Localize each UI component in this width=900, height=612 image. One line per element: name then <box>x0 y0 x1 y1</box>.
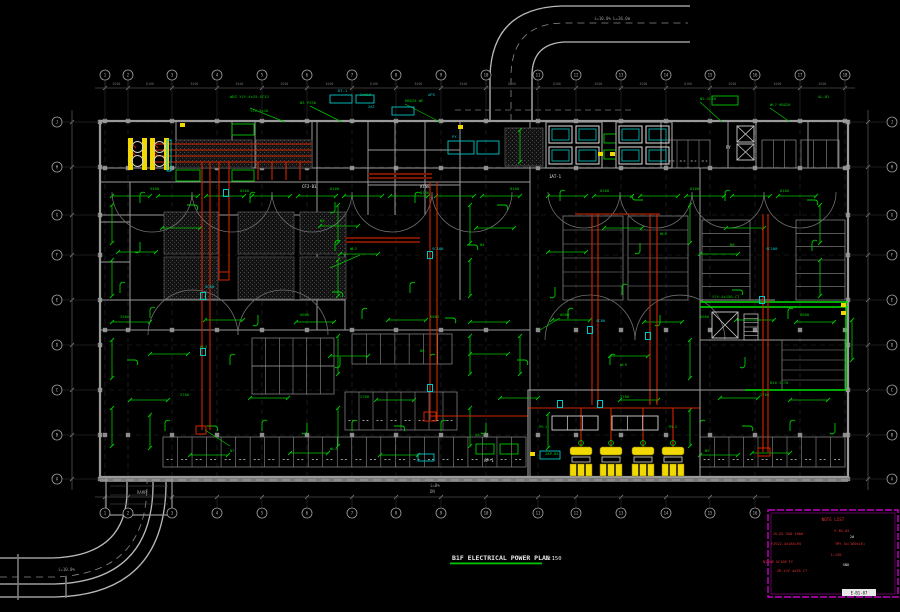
tray-connector <box>201 349 206 356</box>
circuit-hook-path <box>362 308 367 319</box>
elevator-car-cab <box>622 150 639 161</box>
circuit-hook <box>430 354 435 365</box>
green-annotation-text: 6000 <box>300 312 310 317</box>
green-equipment-box <box>232 124 254 135</box>
green-annotation-text: 8100 <box>420 190 430 195</box>
dim-value: 8100 <box>595 82 603 86</box>
green-annotation-text: N10 SC70 <box>770 380 789 385</box>
elevator-car <box>549 147 572 164</box>
circuit-hook-path <box>467 245 478 250</box>
cyan-annotation-text: PY-1 <box>452 134 462 139</box>
circuit-hook-path <box>830 423 835 434</box>
grid-bubble-label: J <box>56 120 58 125</box>
circuit-hook <box>140 192 145 203</box>
circuit-hook <box>807 200 818 205</box>
dim-value: 8100 <box>819 82 827 86</box>
green-annotation-text: N3 PZ30 <box>300 100 317 105</box>
green-annotation-text: 6000 <box>430 314 440 319</box>
dim-value: 8100 <box>640 82 648 86</box>
dim-value: 8100 <box>326 82 334 86</box>
green-annotation-text: 8100 <box>510 186 520 191</box>
green-annotation-text: KBG25 WE <box>405 98 424 103</box>
circuit-hook <box>120 282 125 293</box>
column-marker <box>394 433 398 437</box>
transformer-body <box>664 457 682 462</box>
grid-bubble-label: 10 <box>484 73 489 78</box>
circuit-hook-path <box>335 357 340 368</box>
transformer-cap <box>570 447 592 455</box>
circuit-hook-path <box>742 426 753 431</box>
circuit-hook <box>467 245 478 250</box>
circuit-hook-path <box>497 205 508 210</box>
cyan-annotation-text: SC100 <box>766 246 778 251</box>
grid-bubble-label: 13 <box>619 511 624 516</box>
drawing-scale: 1:150 <box>545 556 562 562</box>
circuit-hook <box>740 357 745 368</box>
circuit-hook-path <box>230 354 235 365</box>
circuit-hook <box>790 420 795 431</box>
green-annotation-text: 2700 <box>620 394 630 399</box>
circuit-hook-path <box>725 190 730 201</box>
cyan-equipment-box <box>477 141 499 154</box>
grid-bubble-label: 16 <box>753 73 758 78</box>
elevator-car <box>646 126 669 143</box>
tray-end-box <box>219 272 229 280</box>
green-annotation-text: WL6 <box>660 231 668 236</box>
green-equipment-box <box>476 444 494 454</box>
cyan-annotation-text: DT-1 <box>338 88 348 93</box>
column-marker <box>536 328 540 332</box>
drive-arc-layer <box>112 192 836 340</box>
transformer-base <box>570 464 592 476</box>
road-label: i=10.0% L=36.0m <box>594 16 631 21</box>
green-annotation-text: N6 <box>420 348 425 353</box>
green-annotation-text: 6000 <box>700 314 710 319</box>
circuit-hook-path <box>253 315 258 326</box>
parking-stalls-layer <box>163 140 845 467</box>
column-marker <box>574 433 578 437</box>
elevator-car-cab <box>552 129 569 140</box>
yellow-highlight <box>841 311 846 315</box>
green-annotation-text: WL7 KBG20 <box>770 102 791 107</box>
column-marker <box>619 433 623 437</box>
circuit-hook <box>127 360 138 365</box>
note-item: ZR-YJV 4x95 CT <box>777 569 808 573</box>
green-annotation-text: N8 <box>730 242 735 247</box>
circuit-hook <box>812 240 817 251</box>
cyan-annotation-text: SC80 <box>596 318 606 323</box>
circuit-hook-path <box>790 420 795 431</box>
cyan-annotation-text: SC80 <box>205 284 215 289</box>
cyan-annotation-text: 2AT <box>368 104 376 109</box>
green-annotation-text: WL9 <box>620 362 628 367</box>
transformer-body <box>602 457 620 462</box>
column-marker <box>103 433 107 437</box>
generator-rail <box>150 138 155 170</box>
switchgear-cabinet <box>552 416 598 430</box>
grid-bubble-label: 14 <box>664 511 669 516</box>
elevator-car-cab <box>649 150 666 161</box>
generator-unit <box>154 142 165 153</box>
green-annotation-text: 8100 <box>600 188 610 193</box>
note-item: N1-N8 SC100 FC <box>763 560 793 564</box>
generator-unit <box>154 156 165 167</box>
circuit-hook <box>352 420 357 431</box>
green-annotation-text: YJV-5x16 <box>250 108 269 113</box>
column-marker <box>170 433 174 437</box>
title-block: B1F ELECTRICAL POWER PLAN 1:150 <box>450 554 562 564</box>
circuit-hook <box>207 426 218 431</box>
yellow-highlight <box>180 123 185 127</box>
circuit-hook-path <box>207 426 218 431</box>
notes-box-layer: NOTE LISTJS-B1 GGD 1600YJV22-4x185+95N1-… <box>763 510 898 597</box>
green-equipment-box <box>232 170 254 181</box>
hatched-storage-room <box>300 257 346 299</box>
elevator-car-cab <box>649 129 666 140</box>
green-annotation-text: N5 <box>320 218 325 223</box>
drawing-title: B1F ELECTRICAL POWER PLAN <box>452 554 550 562</box>
road-edge <box>0 477 153 584</box>
green-equipment-box <box>604 134 616 143</box>
circuit-hook-path <box>352 420 357 431</box>
dim-value: 8100 <box>191 82 199 86</box>
transformer-body <box>572 457 590 462</box>
floor-plan-drawing: 8100810081008100810081008100810081008100… <box>0 0 900 612</box>
dim-value: 8100 <box>415 82 423 86</box>
dim-value: 8100 <box>508 82 516 86</box>
grid-bubble-label: 10 <box>484 511 489 516</box>
column-marker <box>439 433 443 437</box>
column-marker <box>260 433 264 437</box>
note-item: 1:150 <box>831 553 842 557</box>
elevator-car <box>576 126 599 143</box>
room-label: 1AT-1 <box>549 174 562 179</box>
column-marker <box>536 433 540 437</box>
circuit-hook <box>517 360 528 365</box>
circuit-hook <box>550 287 555 298</box>
tray-connector <box>558 401 563 408</box>
switchgear-cabinet <box>612 416 658 430</box>
stall-group <box>163 437 526 467</box>
column-marker <box>708 433 712 437</box>
elevator-car <box>576 147 599 164</box>
circuit-hook <box>302 423 307 434</box>
column-marker <box>708 328 712 332</box>
circuit-hook <box>497 205 508 210</box>
room-label: ATSE <box>420 184 430 189</box>
cyan-equipment-box <box>418 454 434 461</box>
elevator-car-cab <box>579 150 596 161</box>
green-annotation-text: AA-1 <box>475 432 485 437</box>
circuit-hook-path <box>330 202 335 213</box>
elevator-car <box>619 126 642 143</box>
circuit-hook-path <box>127 360 138 365</box>
circuit-hook <box>788 308 793 319</box>
cyan-annotation-text: AP5 <box>428 92 435 97</box>
note-item-white: 2# <box>850 535 855 539</box>
circuit-hook-path <box>120 282 125 293</box>
circuit-hook <box>700 420 705 431</box>
transformer-base <box>600 464 622 476</box>
yellow-highlight <box>598 152 603 156</box>
circuit-hook <box>262 420 267 431</box>
transformer-base <box>632 464 654 476</box>
drawing-number: E-B1-07 <box>851 591 868 596</box>
green-annotation-text: YJV-4x150-CT <box>712 294 740 299</box>
drive-arc <box>692 192 764 228</box>
hatched-storage-room <box>238 257 294 299</box>
grid-bubble-label: 12 <box>574 511 579 516</box>
generator-rail <box>128 138 133 170</box>
green-annotation-text: 8100 <box>780 188 790 193</box>
drive-arc <box>352 192 432 232</box>
yellow-highlight <box>530 452 535 456</box>
circuit-hook-path <box>812 240 817 251</box>
circuit-hook-path <box>550 287 555 298</box>
circuit-hook <box>830 423 835 434</box>
note-item-white: GND <box>843 563 850 567</box>
grid-bubble-label: 15 <box>708 511 713 516</box>
note-item: YJV22-4x185+95 <box>771 542 801 546</box>
leader-line <box>310 106 342 122</box>
generator-rail <box>142 138 147 170</box>
column-marker <box>753 433 757 437</box>
leader-line <box>205 430 230 446</box>
grid-bubble-label: 15 <box>708 73 713 78</box>
circuit-hook-path <box>700 420 705 431</box>
dim-value: 8100 <box>553 82 561 86</box>
circuit-hook-path <box>517 360 528 365</box>
dim-value: 8100 <box>281 82 289 86</box>
yellow-highlight <box>458 125 463 129</box>
transformer-base <box>662 464 684 476</box>
column-marker <box>798 433 802 437</box>
title-underline <box>450 563 542 565</box>
grid-bubble-label: J <box>891 120 893 125</box>
green-annotation-text: 1AP-B1 <box>545 451 559 456</box>
circuit-hook <box>135 242 140 253</box>
grid-bubble-label: 11 <box>536 73 541 78</box>
grid-bubble-label: 13 <box>619 73 624 78</box>
note-item: JS-B1 GGD 1600 <box>773 532 803 536</box>
room-label: AP-1 <box>484 458 494 463</box>
dim-value: 8100 <box>729 82 737 86</box>
yellow-highlight <box>841 303 846 307</box>
cyan-equipment-box <box>392 107 414 115</box>
column-marker <box>574 328 578 332</box>
transformer-cap <box>600 447 622 455</box>
grid-bubble-label: 16 <box>753 511 758 516</box>
circuit-hook <box>165 420 170 431</box>
column-marker <box>619 328 623 332</box>
green-annotation-text: TM-1 <box>538 424 548 429</box>
circuit-hook-path <box>165 420 170 431</box>
dim-value: 8100 <box>684 82 692 86</box>
elevator-car-cab <box>552 150 569 161</box>
circuit-hook-path <box>788 308 793 319</box>
green-annotation-text: 8100 <box>240 188 250 193</box>
green-annotation-text: 5400 <box>150 186 160 191</box>
note-item: TMY 3x(100x10) <box>835 542 865 546</box>
dim-value: 8100 <box>460 82 468 86</box>
green-annotation-text: 2700 <box>180 392 190 397</box>
grid-bubble-label: 17 <box>798 73 803 78</box>
circuit-hook <box>742 426 753 431</box>
cad-floor-plan-screenshot: 8100810081008100810081008100810081008100… <box>0 0 900 612</box>
circuit-hook-path <box>740 357 745 368</box>
circuit-hook-path <box>410 282 415 293</box>
cyan-equipment-box <box>330 95 352 103</box>
green-annotation-text: 8100 <box>690 186 700 191</box>
circuit-hook-path <box>445 318 456 323</box>
stall-group <box>801 140 839 168</box>
green-annotation-text: 6000 <box>560 312 570 317</box>
text-layer: ATSEPY1AT-1CFJ-B1AP-1i=10.0% L=36.0mi=10… <box>58 16 731 572</box>
transformer-body <box>634 457 652 462</box>
green-annotation-text: 2xWL5 <box>360 92 371 97</box>
tray-end-box <box>196 426 206 434</box>
dim-value: 8100 <box>236 82 244 86</box>
notes-header: NOTE LIST <box>822 517 845 522</box>
dim-value: 8100 <box>146 82 154 86</box>
circuit-hook <box>230 354 235 365</box>
circuit-hook <box>410 282 415 293</box>
circuit-hook <box>445 318 456 323</box>
room-label: PY <box>726 145 731 150</box>
road-label: RAMP <box>137 490 147 495</box>
walls-layer <box>100 121 848 515</box>
circuit-hook-path <box>140 192 145 203</box>
generator-unit <box>132 142 143 153</box>
generator-unit <box>132 156 143 167</box>
cyan-annotation-text: SC100 <box>432 246 444 251</box>
green-annotation-text: WL2 <box>350 246 357 251</box>
grid-bubble-label: 18 <box>843 73 848 78</box>
circuit-hook <box>335 357 340 368</box>
grid-bubble-label: 14 <box>664 73 669 78</box>
column-marker <box>798 328 802 332</box>
circuit-hook-path <box>441 420 446 431</box>
column-marker <box>350 433 354 437</box>
stall-group <box>782 340 845 390</box>
column-marker <box>664 328 668 332</box>
green-annotation-text: N9 <box>705 448 710 453</box>
elevator-car <box>619 147 642 164</box>
road-label: DN <box>430 489 435 494</box>
green-annotation-text: N4 <box>480 242 485 247</box>
road-label: i=8% <box>430 483 440 488</box>
circuit-hook <box>362 308 367 319</box>
green-annotation-text: N2-SC50 <box>700 96 717 101</box>
room-label: CFJ-B1 <box>302 184 317 189</box>
dim-value: 8100 <box>370 82 378 86</box>
cyan-equipment-box <box>448 141 474 154</box>
hatched-storage-room <box>505 128 543 166</box>
green-annotation-text: 6000 <box>800 312 810 317</box>
green-annotation-text: 2700 <box>360 394 370 399</box>
generator-rail <box>164 138 169 170</box>
green-annotation-text: WDZ-YJY-4x25-SC32 <box>230 94 269 99</box>
green-annotation-text: N7 <box>230 448 235 453</box>
column-marker <box>126 433 130 437</box>
road-label: i=10.0% <box>58 567 75 572</box>
circuit-hook-path <box>635 243 640 254</box>
road-centerline <box>0 477 147 577</box>
elevator-car-cab <box>622 129 639 140</box>
transformer-cap <box>632 447 654 455</box>
circuit-hook <box>253 315 258 326</box>
green-annotation-text: 3300 <box>120 314 130 319</box>
elevator-car <box>646 147 669 164</box>
tray-connector <box>224 190 229 197</box>
green-annotation-text: 8100 <box>330 186 340 191</box>
green-annotation-text: AL-B1 <box>818 94 830 99</box>
green-equipment-box <box>176 170 200 181</box>
circuit-hook <box>441 420 446 431</box>
hatched-storage-room <box>238 212 294 254</box>
green-annotation-text: WL4 <box>330 446 338 451</box>
transformer-cap <box>662 447 684 455</box>
circuit-hook-path <box>135 242 140 253</box>
green-equipment-box <box>500 444 518 454</box>
note-item: E-B1-02 <box>834 529 849 533</box>
circuit-hook <box>635 243 640 254</box>
circuit-hook-path <box>302 423 307 434</box>
dim-value: 8100 <box>113 82 121 86</box>
circuit-hook <box>725 190 730 201</box>
elevator-car-cab <box>579 129 596 140</box>
circuit-hook <box>330 202 335 213</box>
circuit-hook-path <box>262 420 267 431</box>
grid-bubble-label: 11 <box>536 511 541 516</box>
stall-group <box>762 140 796 168</box>
grid-bubble-label: 12 <box>574 73 579 78</box>
circuit-hook-path <box>807 200 818 205</box>
elevator-car <box>549 126 572 143</box>
circuit-hook-path <box>430 354 435 365</box>
dim-value: 8100 <box>774 82 782 86</box>
column-marker <box>664 433 668 437</box>
yellow-highlight <box>610 152 615 156</box>
ramp-enclosure <box>106 477 172 515</box>
